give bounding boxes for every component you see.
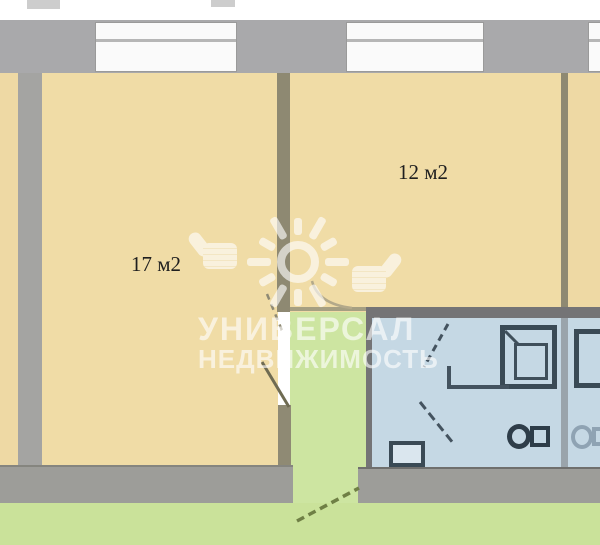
window-right-partial — [588, 22, 600, 72]
wall-between-rooms — [277, 73, 290, 312]
toilet-symbol-partial — [571, 425, 593, 449]
toilet-tank-symbol-partial — [592, 427, 600, 446]
toilet-bowl-symbol — [507, 424, 531, 449]
exterior-wall-top — [0, 20, 600, 73]
room17-area-label: 17 м2 — [131, 252, 181, 277]
window-room17 — [95, 22, 237, 72]
ground-strip — [0, 503, 600, 545]
neighbor-room-sliver — [0, 73, 18, 467]
bathroom-middle-wall — [561, 318, 568, 468]
toilet-tank-symbol — [530, 426, 550, 447]
wall-room17-lower-right — [278, 405, 291, 467]
upper-unit-fragment — [27, 0, 60, 9]
bottom-wall-left — [0, 465, 293, 503]
room12-bottom-wall-line — [290, 307, 367, 311]
room-12m2 — [290, 73, 561, 312]
upper-unit-fragment — [211, 0, 235, 7]
window-room12 — [346, 22, 484, 72]
shower-symbol-partial — [574, 329, 600, 388]
bottom-wall-right — [358, 467, 600, 503]
shower-symbol — [500, 325, 557, 389]
shower-tray-symbol — [514, 343, 548, 380]
right-room-sliver — [568, 73, 600, 312]
wall-room12-right — [561, 73, 568, 312]
sink-symbol — [389, 441, 425, 467]
wall-left-vertical — [18, 73, 42, 467]
room12-area-label: 12 м2 — [398, 160, 448, 185]
floor-plan: 17 м2 12 м2 УНИВЕРСАЛ НЕДВИЖИМОСТЬ — [0, 0, 600, 545]
bathroom-top-wall — [366, 307, 600, 318]
